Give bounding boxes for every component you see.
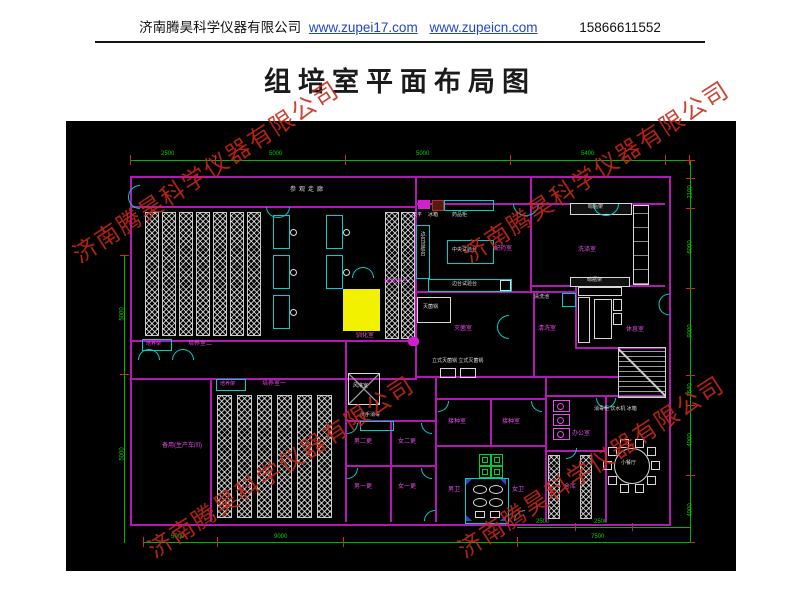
dim-bottom-2: 9000 <box>274 534 287 540</box>
faucet-icon <box>408 337 419 346</box>
culture-rack <box>213 212 227 336</box>
storage-rack <box>548 455 560 519</box>
culture-rack <box>247 212 261 336</box>
sterile-label: 灭菌室 <box>454 326 472 333</box>
sink-icon <box>562 293 576 307</box>
dim-line-bottom <box>143 542 690 543</box>
sink-basin <box>473 485 487 494</box>
chair-icon <box>608 476 617 485</box>
fridge-label: 冰箱 <box>428 213 438 219</box>
dim-tick <box>686 160 695 161</box>
dim-top-1: 2500 <box>161 151 174 157</box>
corner-mark <box>466 479 472 485</box>
page-title: 组培室平面布局图 <box>0 60 800 99</box>
media-label: 配药室 <box>494 246 512 253</box>
wall <box>605 395 607 522</box>
balance-label: 天平 <box>412 213 422 219</box>
culture-rack <box>217 395 232 518</box>
wall <box>210 378 212 522</box>
dim-bottom-3: 7500 <box>591 534 604 540</box>
clean-bench-icon <box>479 466 491 478</box>
dim-tick <box>217 537 218 547</box>
bottle-shelf-label-2: 晾瓶架 <box>587 278 602 284</box>
wash-label: 洗涤室 <box>578 247 596 254</box>
dim-tick <box>215 155 216 165</box>
culture-rack <box>179 212 193 336</box>
appliances-label: 消毒柜 饮水机 冰箱 <box>594 407 637 413</box>
dim-line-top <box>130 160 690 161</box>
sofa-chair <box>613 299 622 311</box>
autoclave-label: 灭菌锅 <box>423 305 438 311</box>
wall <box>390 420 392 522</box>
rinse-label: 清洗室 <box>538 326 556 333</box>
chair-icon <box>635 439 644 448</box>
door-icon <box>172 349 194 360</box>
dim-line-right <box>690 160 691 542</box>
chair-icon <box>647 476 656 485</box>
inoc-a-label: 接种室 <box>448 419 466 426</box>
equipment-cabinet-icon <box>444 200 494 211</box>
culture-rack <box>277 395 292 518</box>
office-label: 办公室 <box>572 431 590 438</box>
door-icon <box>659 294 670 316</box>
dim-right-6: 4000 <box>688 503 694 516</box>
dim-tick <box>120 255 129 256</box>
bottle-shelf-label: 晾瓶架 <box>588 205 603 211</box>
cabinet-label: 药品柜 <box>452 213 467 219</box>
rest-label: 休息室 <box>626 327 644 334</box>
rack-label-box: 培养架 <box>216 379 246 391</box>
toilet-icon <box>490 511 500 518</box>
chair-icon <box>608 447 617 456</box>
sofa <box>578 297 590 343</box>
corner-mark <box>466 515 472 521</box>
header: 济南腾昊科学仪器有限公司 www.zupei17.com www.zupeicn… <box>0 16 800 36</box>
dim-tick <box>686 288 695 289</box>
room1-label: 培养室一 <box>262 381 286 388</box>
storage-label: 仓库 <box>564 484 576 491</box>
central-bench-label: 中央试验台 <box>452 248 477 254</box>
door-icon <box>352 267 374 278</box>
dim-tick <box>130 155 131 165</box>
corner-mark <box>500 479 506 485</box>
wall <box>490 398 492 445</box>
dim-line-bottom-upper <box>517 527 690 528</box>
chair-icon <box>603 461 612 470</box>
autoclave-icon <box>460 368 476 378</box>
office-desk-icon <box>553 400 570 412</box>
storage-rack <box>580 455 592 519</box>
chg-m2-label: 男二更 <box>354 439 372 446</box>
dim-bottom-1: 5000 <box>171 534 184 540</box>
side-bench-label: 边台试验台 <box>419 231 425 256</box>
link-zupeicn[interactable]: www.zupeicn.com <box>429 20 537 35</box>
chair-icon <box>651 461 660 470</box>
dim-tick <box>120 374 129 375</box>
clean-bench-icon <box>491 466 503 478</box>
handwash-label: 洗手消毒 <box>360 413 380 419</box>
dim-top-4: 5400 <box>581 151 594 157</box>
culture-shelf-unit <box>326 215 343 249</box>
door-icon <box>497 315 509 339</box>
culture-shelf-unit <box>273 295 290 329</box>
dim-tick <box>686 208 695 209</box>
autoclaves-label: 立式灭菌锅 立式灭菌锅 <box>432 359 483 365</box>
wc-f-label: 女卫 <box>512 487 524 494</box>
dim-right-1: 2100 <box>688 185 694 198</box>
culture-shelf-unit <box>273 215 290 249</box>
chair-icon <box>620 439 629 448</box>
culture-shelf-unit <box>326 255 343 289</box>
room3-label: 培养室三 <box>384 279 408 286</box>
dim-right-5: 4000 <box>688 433 694 446</box>
culture-rack <box>162 212 176 336</box>
dim-tick <box>665 155 666 165</box>
staircase <box>618 347 666 398</box>
corner-mark <box>500 515 506 521</box>
culture-shelf-unit <box>273 255 290 289</box>
dim-tick <box>686 375 695 376</box>
chg-f2-label: 女二更 <box>398 439 416 446</box>
dim-right-3: 9000 <box>688 324 694 337</box>
wall <box>130 340 417 342</box>
culture-rack <box>230 212 244 336</box>
wall <box>530 176 532 291</box>
sink-label: 清洗池 <box>534 295 549 301</box>
side-bench-2-label: 边台试验台 <box>452 282 477 288</box>
door-icon <box>128 185 140 209</box>
culture-rack <box>297 395 312 518</box>
equipment-box-icon <box>500 280 511 291</box>
chg-m1-label: 男一更 <box>354 484 372 491</box>
sofa-chair <box>613 313 622 325</box>
culture-rack <box>196 212 210 336</box>
air-shower-label: 风淋室 <box>353 384 368 390</box>
chair-icon <box>647 447 656 456</box>
rack-label: 培养架 <box>146 342 161 348</box>
office-desk-icon <box>553 428 570 440</box>
culture-rack <box>237 395 252 518</box>
link-zupei17[interactable]: www.zupei17.com <box>309 20 418 35</box>
rack-label-2: 培养架 <box>220 382 235 388</box>
dim-left-1: 5000 <box>120 307 126 320</box>
sink-basin <box>473 498 487 507</box>
wc-m-label: 男卫 <box>448 487 460 494</box>
company-name: 济南腾昊科学仪器有限公司 <box>139 20 301 35</box>
corridor-label: 参观走廊 <box>278 187 338 194</box>
wall <box>435 445 545 447</box>
dim-line-left <box>124 255 125 543</box>
dim-left-2: 5000 <box>120 447 126 460</box>
wall-shelf <box>633 205 649 285</box>
culture-rack <box>145 212 159 336</box>
room2-label: 培养室二 <box>188 341 212 348</box>
office-desk-icon <box>553 414 570 426</box>
door-icon <box>513 204 539 216</box>
sofa <box>578 287 622 296</box>
handwash-sinks <box>360 421 394 431</box>
sink-basin <box>489 485 503 494</box>
dim-top-3: 5000 <box>416 151 429 157</box>
acclim-label: 驯化室 <box>356 333 374 340</box>
chair-icon <box>620 484 629 493</box>
door-icon <box>138 349 160 360</box>
clean-bench-icon <box>479 454 491 466</box>
dim-top-2: 5000 <box>269 151 282 157</box>
culture-rack <box>401 212 415 339</box>
inoc-b-label: 接种室 <box>502 419 520 426</box>
spare-label: 备用(生产车间) <box>162 443 202 450</box>
page: 济南腾昊科学仪器有限公司 www.zupei17.com www.zupeicn… <box>0 0 800 600</box>
toilet-icon <box>475 511 485 518</box>
chair-icon <box>635 484 644 493</box>
dim-tick <box>143 537 144 547</box>
autoclave-icon <box>440 368 456 378</box>
clean-bench-icon <box>491 454 503 466</box>
culture-rack <box>385 212 399 339</box>
dim-tick <box>686 475 695 476</box>
dim-right-4: 2640 <box>688 383 694 396</box>
dim-tick <box>510 155 511 165</box>
dim-tick <box>343 537 344 547</box>
highlight-square <box>343 289 380 331</box>
floor-plan-canvas: 2500 5000 5000 5400 2100 6000 9000 2640 … <box>66 121 736 571</box>
chg-f1-label: 女一更 <box>398 484 416 491</box>
dim-tick <box>517 537 518 547</box>
door-icon <box>266 207 290 218</box>
culture-rack <box>317 395 332 518</box>
dim-tick <box>686 405 695 406</box>
sink-basin <box>489 498 503 507</box>
dining-label: 小餐厅 <box>621 461 636 467</box>
wall <box>533 291 535 378</box>
balance-icon <box>418 200 430 209</box>
fridge-icon <box>432 200 444 211</box>
dim-right-2: 6000 <box>688 240 694 253</box>
header-divider <box>95 41 705 43</box>
dim-tick <box>686 178 695 179</box>
phone-number: 15866611552 <box>579 20 661 35</box>
culture-rack <box>257 395 272 518</box>
tea-table <box>594 299 612 339</box>
dim-tick <box>345 155 346 165</box>
